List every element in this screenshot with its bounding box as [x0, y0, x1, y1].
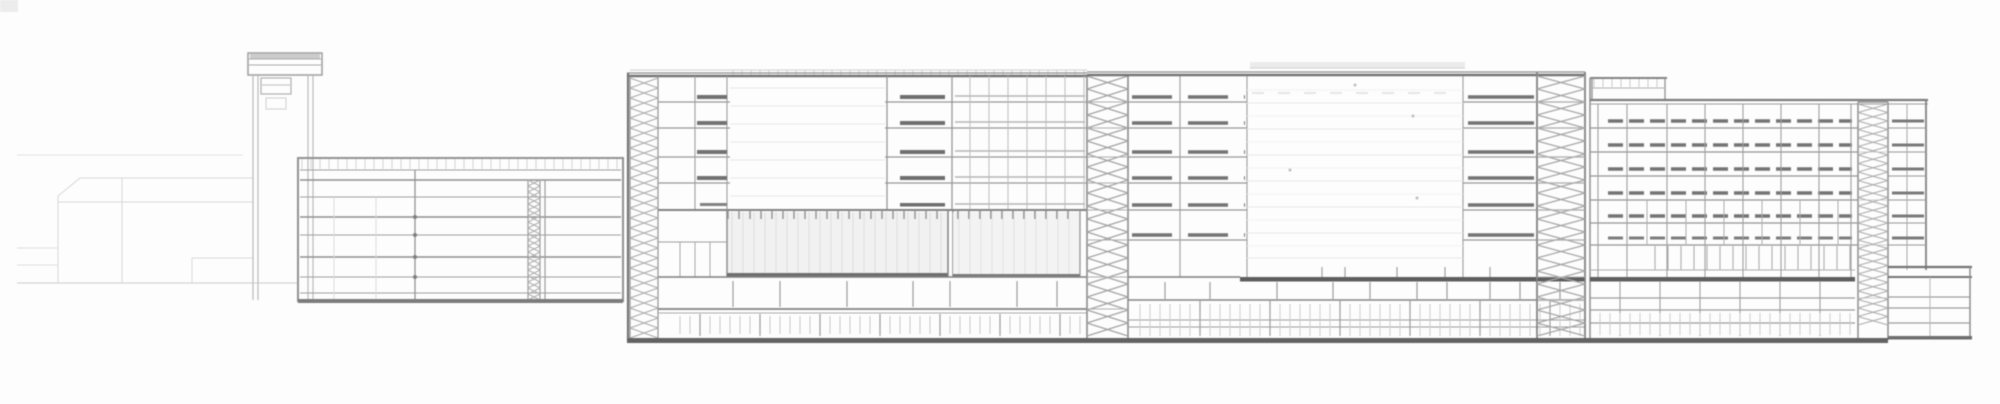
building-section-drawing [0, 0, 2000, 404]
east-wing [1590, 78, 1928, 338]
lattice-core-west [1087, 76, 1128, 338]
main-block-center [1087, 62, 1585, 341]
ground-slab [627, 338, 1888, 343]
stair-tower-east [1858, 102, 1888, 340]
architectural-section-canvas [0, 0, 2000, 404]
chimney-tower [248, 53, 322, 300]
backdrop-outbuilding [17, 155, 298, 283]
corner-artifact [0, 0, 18, 12]
lowrise-annex [298, 158, 623, 303]
annex-east [1888, 267, 1972, 340]
main-block-west [627, 70, 1087, 341]
